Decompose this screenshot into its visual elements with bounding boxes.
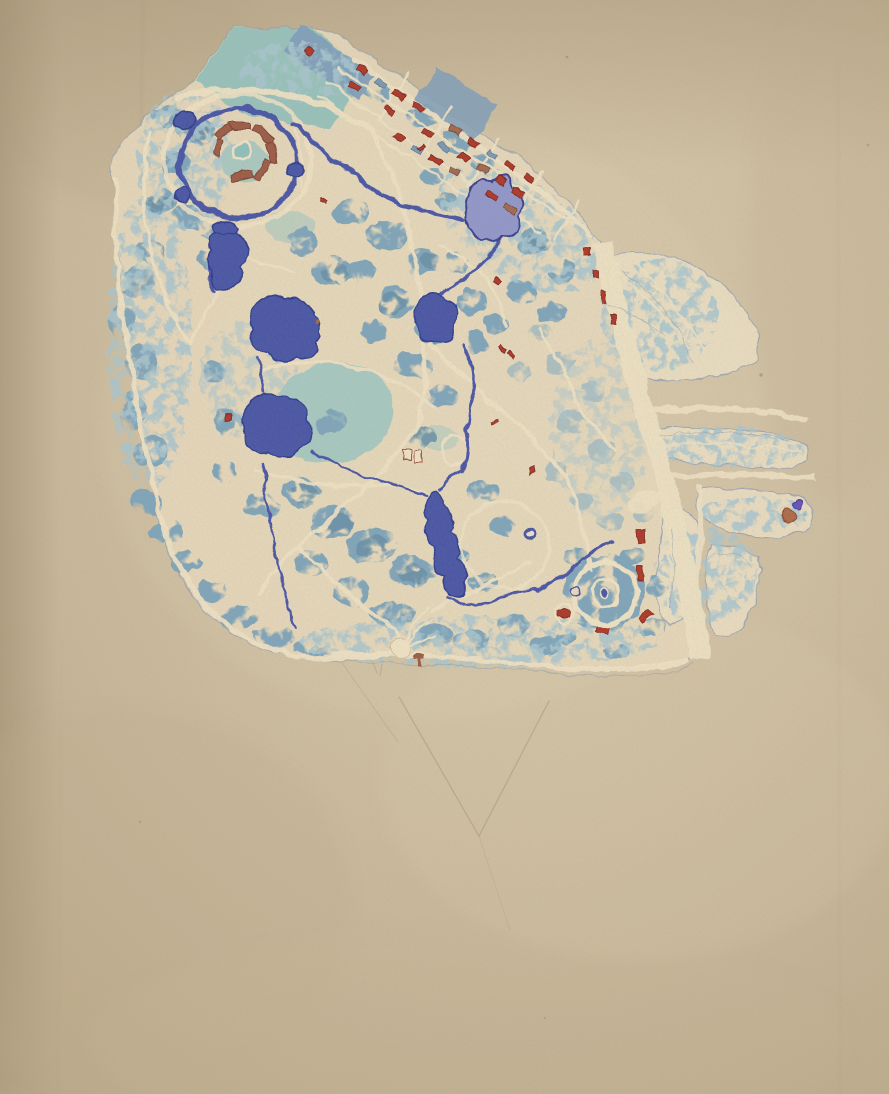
paper-grain-overlay	[0, 0, 889, 1094]
scanned-map-sheet	[0, 0, 889, 1094]
park-plan-svg	[0, 0, 889, 1094]
